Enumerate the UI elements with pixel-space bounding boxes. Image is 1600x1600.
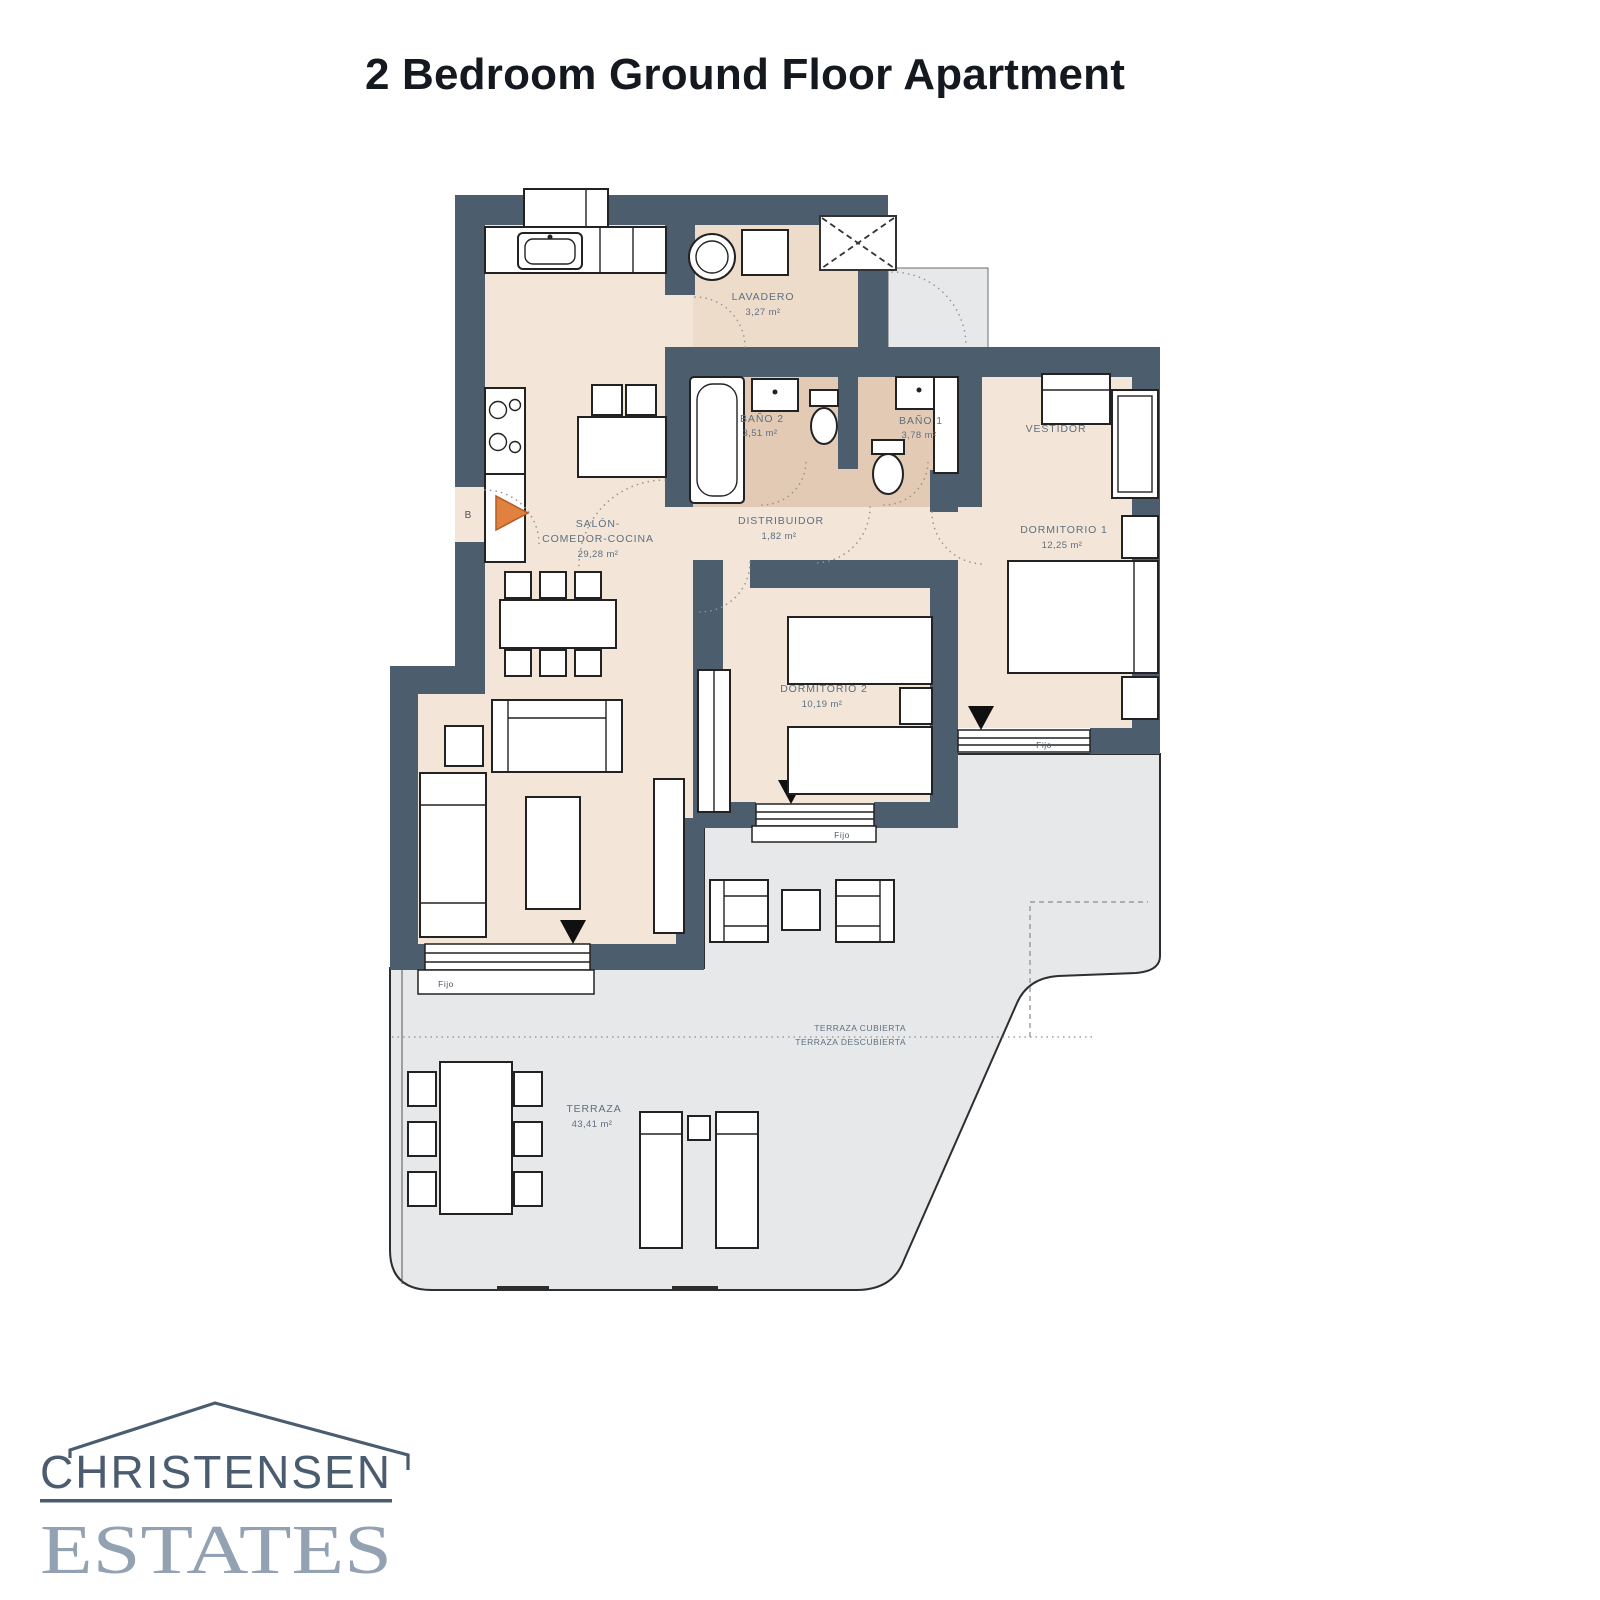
terrace-chair [408, 1172, 436, 1206]
bathroom-sink [752, 379, 798, 411]
wall-bath-divider [838, 377, 858, 469]
dining-chair [505, 650, 531, 676]
living-window [425, 944, 590, 970]
terrace-chair [408, 1122, 436, 1156]
lounger-side-table [688, 1116, 710, 1140]
wall-left-upper [455, 195, 485, 487]
terrace-edge-mark [672, 1286, 718, 1290]
area-dormitorio1: 12,25 m² [1042, 540, 1083, 551]
tv-unit [654, 779, 684, 933]
closet [1112, 390, 1158, 498]
logo-underline [40, 1499, 392, 1503]
toilet-bowl [811, 408, 837, 444]
area-dormitorio2: 10,19 m² [802, 699, 843, 710]
sun-lounger [640, 1112, 682, 1248]
dining-table [500, 600, 616, 648]
dorm1-window [958, 730, 1090, 752]
logo-brand-name: CHRISTENSEN [40, 1446, 392, 1498]
wall-bath1-vestidor [958, 377, 982, 507]
dining-set [500, 572, 616, 676]
dorm1-window-label: Fijo [1036, 740, 1052, 750]
wall-dorm2-top [750, 560, 933, 588]
sofa [492, 700, 622, 772]
dining-chair [575, 650, 601, 676]
faucet-icon [917, 388, 922, 393]
wall-kitchen-divider [665, 195, 695, 295]
living-window-label: Fijo [438, 979, 454, 989]
label-bano2: BAÑO 2 [740, 412, 784, 425]
nightstand [900, 688, 932, 724]
label-dormitorio1: DORMITORIO 1 [1020, 524, 1108, 536]
toilet-bowl [873, 454, 903, 494]
outdoor-armchair [710, 880, 768, 942]
area-salon: 29,28 m² [578, 549, 619, 560]
laundry-unit [742, 230, 788, 275]
terrace-chair [514, 1172, 542, 1206]
single-bed [788, 727, 932, 794]
nightstand [1122, 516, 1158, 558]
terrace-edge-mark [497, 1286, 549, 1290]
shaft [820, 216, 896, 270]
nightstand [1122, 677, 1158, 719]
sun-lounger [716, 1112, 758, 1248]
dining-chair [540, 650, 566, 676]
area-terraza: 43,41 m² [572, 1119, 613, 1130]
coffee-table [526, 797, 580, 909]
label-terraza-descubierta: TERRAZA DESCUBIERTA [795, 1037, 906, 1047]
logo-brand-sub: ESTATES [40, 1512, 392, 1589]
dorm2-window [756, 804, 874, 826]
area-distribuidor: 1,82 m² [761, 531, 796, 542]
label-salon-line1: SALÓN- [576, 517, 621, 530]
wall-block-top [665, 347, 1160, 377]
area-bano2: 3,51 m² [742, 428, 777, 439]
label-distribuidor: DISTRIBUIDOR [738, 515, 824, 527]
wall-bath2-left [665, 347, 693, 507]
dining-chair [540, 572, 566, 598]
wall-dorm1-dorm2 [930, 560, 958, 828]
island-table [578, 417, 666, 477]
outdoor-side-table [782, 890, 820, 930]
christensen-estates-logo: CHRISTENSEN ESTATES [18, 1378, 438, 1593]
terrace-chair [514, 1072, 542, 1106]
label-salon-line2: COMEDOR-COCINA [542, 533, 654, 545]
terrace-chair [408, 1072, 436, 1106]
floor-plan: Fijo Fijo Fijo [0, 0, 1600, 1600]
label-lavadero: LAVADERO [732, 291, 795, 303]
sideboard [420, 773, 486, 937]
wall-left-lower [390, 666, 418, 970]
wall-dorm1-left-stub [930, 470, 958, 512]
island-chair [592, 385, 622, 415]
dorm2-window-sill [752, 826, 876, 842]
area-lavadero: 3,27 m² [745, 307, 780, 318]
label-terraza-cubierta: TERRAZA CUBIERTA [814, 1023, 906, 1033]
label-vestidor: VESTIDOR [1026, 423, 1087, 435]
toilet-tank [810, 390, 838, 406]
kitchen-faucet-icon [548, 235, 553, 240]
double-bed [1008, 561, 1158, 673]
label-bano1: BAÑO 1 [899, 414, 943, 427]
outdoor-armchair [836, 880, 894, 942]
dorm2-window-label: Fijo [834, 830, 850, 840]
wall-dorm2-bottom-right [874, 802, 934, 828]
wall-bottom-stub-left [390, 944, 428, 970]
label-dormitorio2: DORMITORIO 2 [780, 683, 868, 695]
side-table [445, 726, 483, 766]
terrace-table [440, 1062, 512, 1214]
label-terraza: TERRAZA [566, 1103, 621, 1115]
dining-chair [575, 572, 601, 598]
single-bed [788, 617, 932, 684]
area-bano1: 3,78 m² [901, 430, 936, 441]
island-chair [626, 385, 656, 415]
service-vestibule [888, 268, 988, 348]
kitchen-appliance [524, 189, 608, 227]
closet [1042, 374, 1110, 424]
dining-chair [505, 572, 531, 598]
faucet-icon [773, 390, 778, 395]
toilet-tank [872, 440, 904, 454]
terrace-chair [514, 1122, 542, 1156]
entrance-label: B [465, 510, 472, 521]
